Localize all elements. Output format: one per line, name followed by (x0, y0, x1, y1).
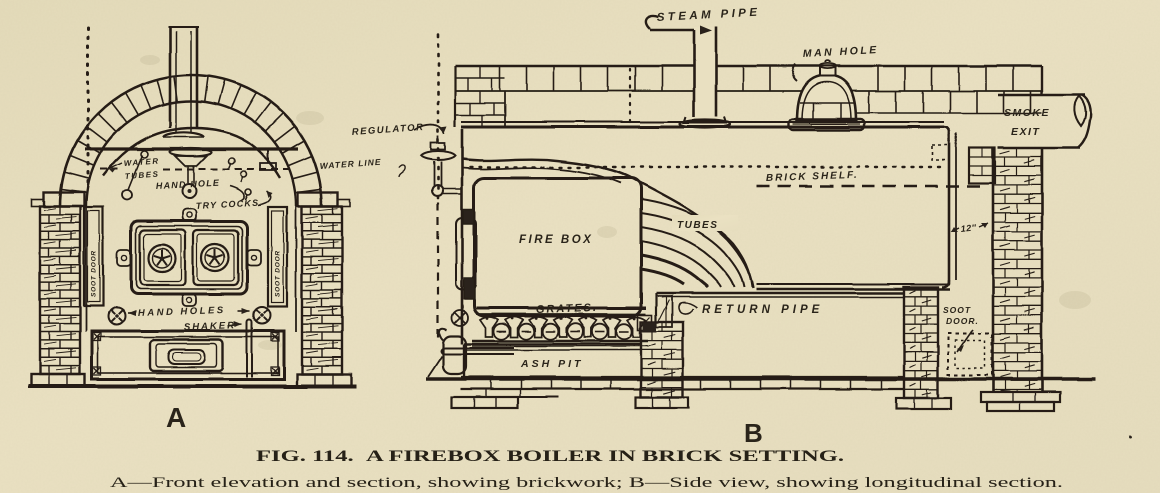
svg-text:SMOKE: SMOKE (1004, 107, 1050, 119)
svg-text:A: A (166, 402, 186, 433)
svg-text:TUBES: TUBES (677, 220, 718, 231)
svg-text:DOOR.: DOOR. (946, 316, 979, 326)
svg-text:SOOT DOOR: SOOT DOOR (275, 250, 282, 297)
svg-text:12″: 12″ (960, 222, 977, 234)
svg-text:A—Front elevation and section,: A—Front elevation and section, showing b… (110, 475, 1063, 491)
svg-text:B: B (744, 418, 763, 448)
svg-text:EXIT: EXIT (1011, 126, 1040, 138)
svg-text:GRATES.: GRATES. (536, 302, 598, 316)
svg-text:SOOT DOOR: SOOT DOOR (91, 250, 98, 297)
svg-text:SOOT: SOOT (943, 305, 971, 315)
svg-text:ASH PIT: ASH PIT (520, 358, 583, 370)
svg-text:FIG. 114. A FIREBOX BOILER IN: FIG. 114. A FIREBOX BOILER IN BRICK SETT… (256, 448, 844, 465)
svg-text:FIRE BOX: FIRE BOX (519, 234, 593, 246)
svg-text:RETURN PIPE: RETURN PIPE (702, 304, 823, 316)
svg-text:SHAKER: SHAKER (184, 320, 236, 333)
